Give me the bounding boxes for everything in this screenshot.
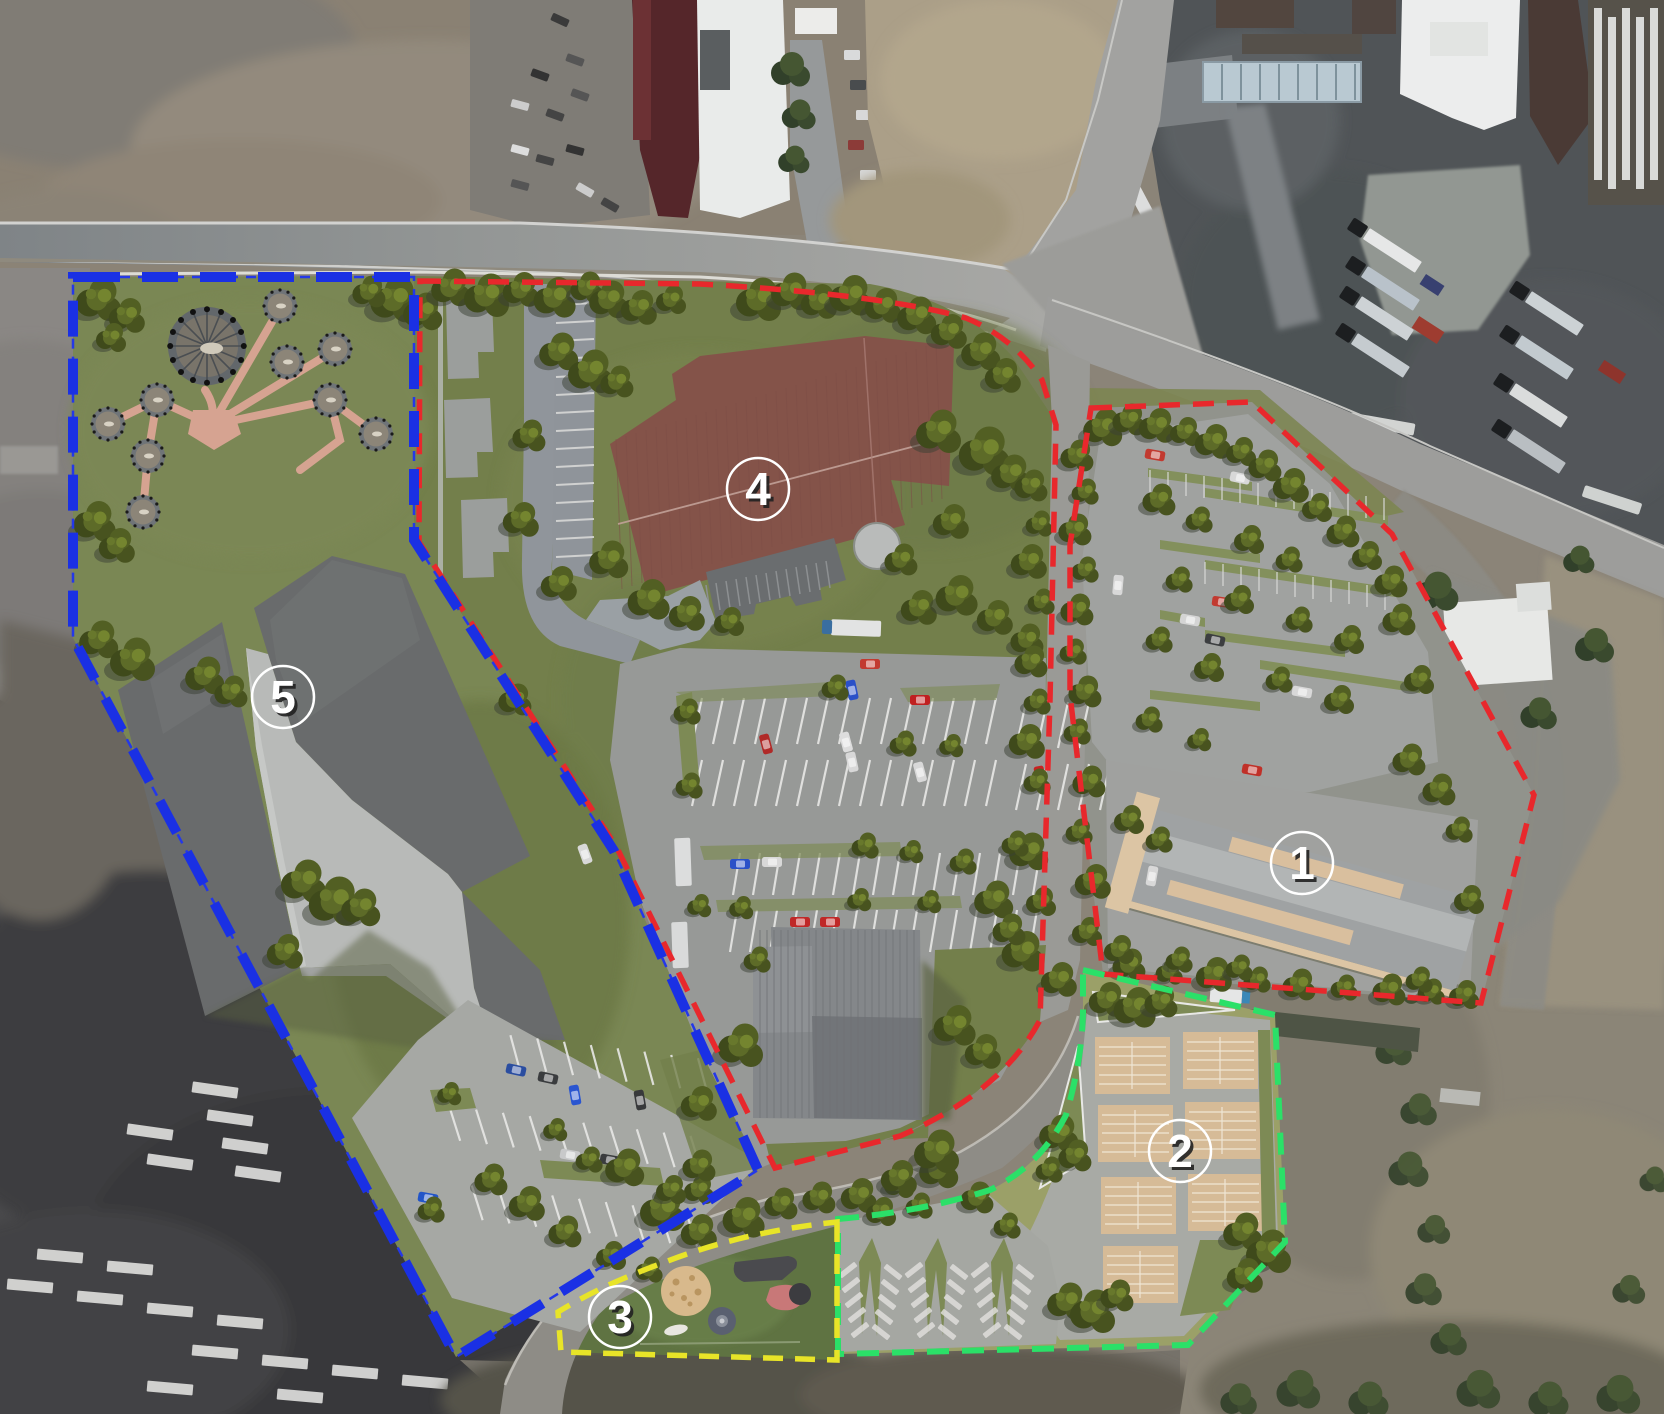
svg-text:2: 2	[1167, 1125, 1193, 1177]
svg-text:5: 5	[270, 671, 296, 723]
svg-text:3: 3	[607, 1291, 633, 1343]
svg-text:1: 1	[1289, 837, 1315, 889]
svg-text:4: 4	[745, 463, 771, 515]
